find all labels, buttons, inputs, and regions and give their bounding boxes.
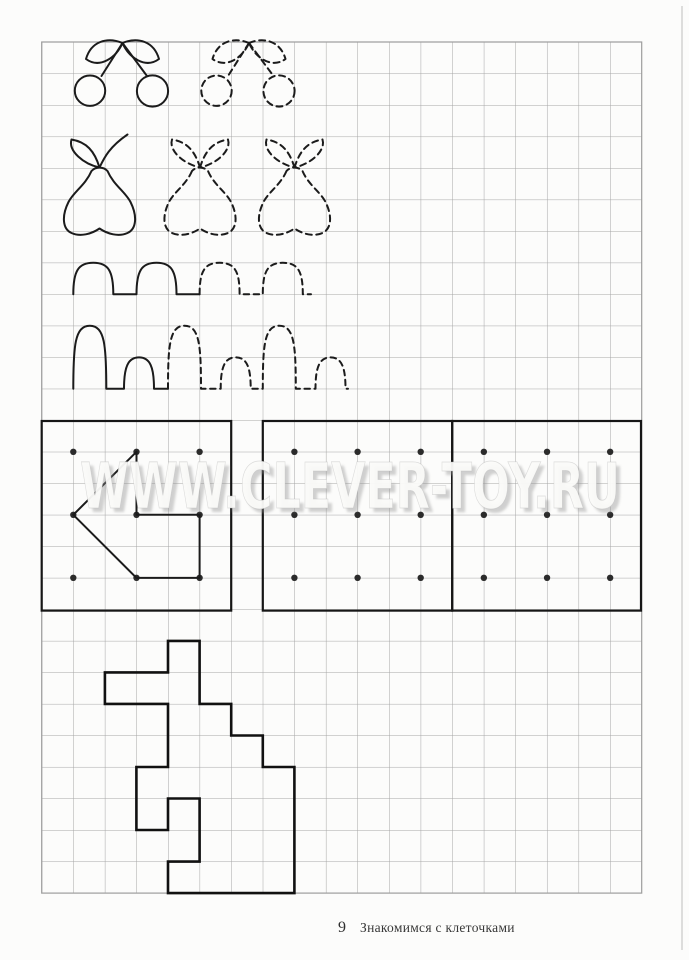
workbook-page: WWW.CLEVER-TOY.RU WWW.CLEVER-TOY.RU 9 Зн…: [0, 0, 689, 960]
footer-title: Знакомимся с клеточками: [360, 920, 515, 936]
watermark-text: WWW.CLEVER-TOY.RU: [80, 450, 620, 523]
scan-edge-line: [681, 6, 683, 950]
page-footer: 9 Знакомимся с клеточками: [338, 919, 515, 937]
worksheet-canvas: WWW.CLEVER-TOY.RU WWW.CLEVER-TOY.RU: [0, 0, 689, 960]
page-number: 9: [338, 919, 346, 937]
